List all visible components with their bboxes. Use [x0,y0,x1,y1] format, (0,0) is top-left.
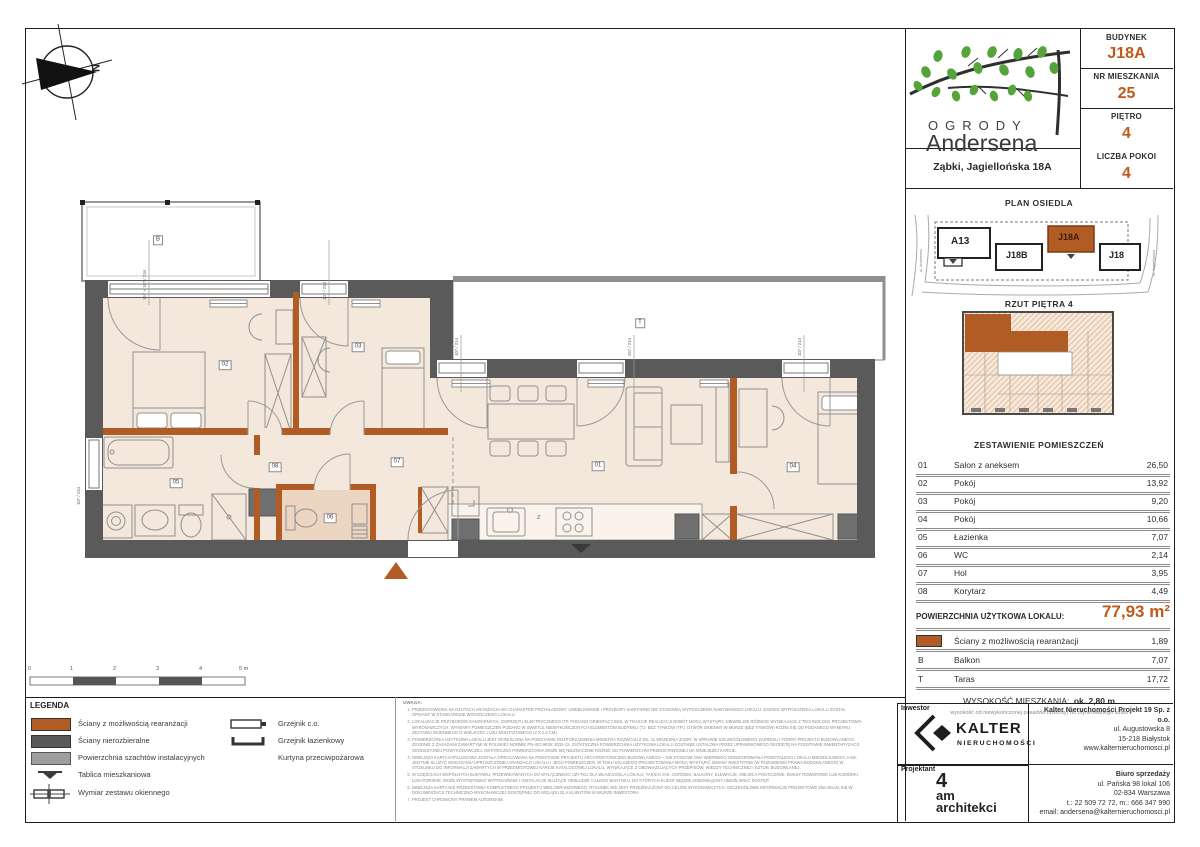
bottom-band-divider [25,697,905,698]
scale-tick: 5 m [239,666,248,672]
divider [1080,68,1173,69]
building-label-j18: J18 [1109,250,1124,260]
designer-label: Projektant [901,766,935,773]
dim-label: 107 / 214 [797,338,802,356]
legend-label: Ściany z możliwością rearanżacji [78,719,188,728]
rooms-table-title: ZESTAWIENIE POMIESZCZEŃ [905,440,1173,450]
note-item: W CZĘŚCIACH WSPÓLNYCH BUDYNKU, PRZEWIDYW… [412,772,863,783]
floor-overview-title: RZUT PIĘTRA 4 [905,299,1173,309]
note-item: PRZEDSTAWIONA NA RZUTACH ARANŻACJA MA CH… [412,707,863,718]
scale-bar [30,677,245,685]
terrace-outline [453,276,884,360]
legend-notes-divider [395,697,396,821]
room-label-08: 08 [269,462,282,472]
scale-tick: 1 [70,666,73,672]
apartment-card-page: N 01 02 03 04 05 06 07 08 B T Z 157 + 16… [0,0,1200,847]
kalter-sub: nieruchomości [957,740,1036,747]
sales-office-title: Biuro sprzedaży [1032,770,1170,780]
legend-label: Grzejnik łazienkowy [278,736,344,745]
site-plan-title: PLAN OSIEDLA [905,198,1173,208]
legend-swatch-dark [31,735,71,748]
designer-line3: architekci [936,802,997,814]
dim-label: 107 / 234 [322,282,327,300]
building-label-a13: A13 [951,236,969,247]
room-label-02: 02 [219,360,232,370]
note-item: POWIERZCHNIA UŻYTKOWA LOKALU JEST OKREŚL… [412,737,863,753]
table-row: 08Korytarz4,49 [916,581,1170,603]
room-label-05: 05 [170,478,183,488]
sales-office-contact: Biuro sprzedaży ul. Pańska 98 lokal 106 … [1032,770,1170,818]
balcony-outline [80,200,260,281]
height-value: ok. 2,80 m [1074,696,1115,706]
note-item: PROJEKT CHRONIONY PRAWEM AUTORSKIM. [412,797,863,802]
building-label-j18a: J18A [1058,232,1080,242]
dim-label: 107 / 214 [454,338,459,356]
room-label-01: 01 [592,461,605,471]
legend-label: Grzejnik c.o. [278,719,320,728]
legend-label: Kurtyna przeciwpożarowa [278,753,364,762]
footer-top-line [897,703,1173,704]
contact-divider [1027,764,1173,765]
extra-row-walls: Ściany z możliwością rearanżacji1,89 [916,631,1170,652]
divider [1080,108,1173,109]
company-website: www.kalternieruchomosci.pl [1032,744,1170,754]
balcony-label: B [153,235,163,245]
extra-row-balkon: BBalkon7,07 [916,650,1170,671]
sales-email: email: andersena@kalternieruchomosci.pl [1032,808,1170,818]
legend-swatch-gray [31,752,71,765]
building-label-j18b: J18B [1006,250,1028,260]
usable-area-value: 77,93 m² [1102,602,1170,622]
field-value-pokoje: 4 [1080,165,1173,182]
legend-label: Tablica mieszkaniowa [78,770,151,779]
info-board-legend-icon [34,769,66,781]
notes-title: UWAGA: [403,700,863,705]
north-arrow-icon [22,24,112,120]
note-item: NINIEJSZA KARTA KATALOGOWA ZOSTAŁA OPRAC… [412,755,863,771]
company-name: Kalter Nieruchomości Projekt 19 Sp. z o.… [1032,706,1170,725]
logo-line2: Andersena [926,130,1037,157]
street-label-left: ul. Andersena [919,249,923,272]
company-address1: ul. Augustowska 8 [1032,725,1170,735]
field-label-pokoje: LICZBA POKOI [1080,152,1173,161]
field-value-mieszkanie: 25 [1080,85,1173,102]
orange-swatch [916,635,942,647]
sales-phone: t.: 22 509 72 72, m.: 666 347 990 [1032,799,1170,809]
sales-address2: 02-834 Warszawa [1032,789,1170,799]
legend-label: Powierzchnia szachtów instalacyjnych [78,753,205,762]
dim-label: 107 / 234 [76,487,81,505]
floor-overview-drawing [963,312,1113,414]
room-label-06: 06 [324,513,337,523]
project-address: Ząbki, Jagiellońska 18A [905,161,1080,173]
note-item: LOKALIZACJE PRZYBORÓW SANITARNYCH, OSPRZ… [412,719,863,735]
scale-tick: 4 [199,666,202,672]
kitchen-sink-label: Z [537,515,540,521]
scale-tick: 2 [113,666,116,672]
usable-area-row: POWIERZCHNIA UŻYTKOWA LOKALU: 77,93 m² [916,602,1170,631]
radiator-co-legend-icon [230,718,268,730]
company-address2: 15-218 Białystok [1032,735,1170,745]
note-item: NINIEJSZA KARTA NIE PRZEDSTAWIA KOMPLETN… [412,785,863,796]
room-label-04: 04 [787,462,800,472]
legend-title: LEGENDA [30,701,69,710]
legend-label: Wymiar zestawu okiennego [78,788,170,797]
radiator-bath-legend-icon [230,735,268,747]
kalter-name: KALTER [956,720,1022,737]
north-label: N [89,64,101,72]
field-value-budynek: J18A [1080,45,1173,62]
legend-label: Ściany nierozbieralne [78,736,150,745]
field-label-mieszkanie: NR MIESZKANIA [1080,72,1173,81]
field-label-budynek: BUDYNEK [1080,33,1173,42]
dim-label: 157 + 167 / 234 [142,270,147,300]
street-label-right: ul. Jagiellońska [1152,250,1156,276]
scale-tick: 3 [156,666,159,672]
notes-block: UWAGA: PRZEDSTAWIONA NA RZUTACH ARANŻACJ… [403,700,863,804]
scale-tick: 0 [28,666,31,672]
field-value-pietro: 4 [1080,125,1173,142]
room-label-03: 03 [352,342,365,352]
investor-label: Inwestor [901,705,930,712]
extra-row-taras: TTaras17,72 [916,669,1170,690]
usable-area-label: POWIERZCHNIA UŻYTKOWA LOKALU: [916,612,1064,621]
company-contact: Kalter Nieruchomości Projekt 19 Sp. z o.… [1032,706,1170,754]
terrace-label: T [635,318,645,328]
window-dimension-legend-icon [30,784,70,804]
dim-label: 257 / 214 [627,338,632,356]
legend-swatch-orange [31,718,71,731]
field-label-pietro: PIĘTRO [1080,112,1173,121]
divider [905,188,1173,189]
sales-address1: ul. Pańska 98 lokal 106 [1032,780,1170,790]
entrance-marker [384,562,408,579]
room-label-07: 07 [391,457,404,467]
